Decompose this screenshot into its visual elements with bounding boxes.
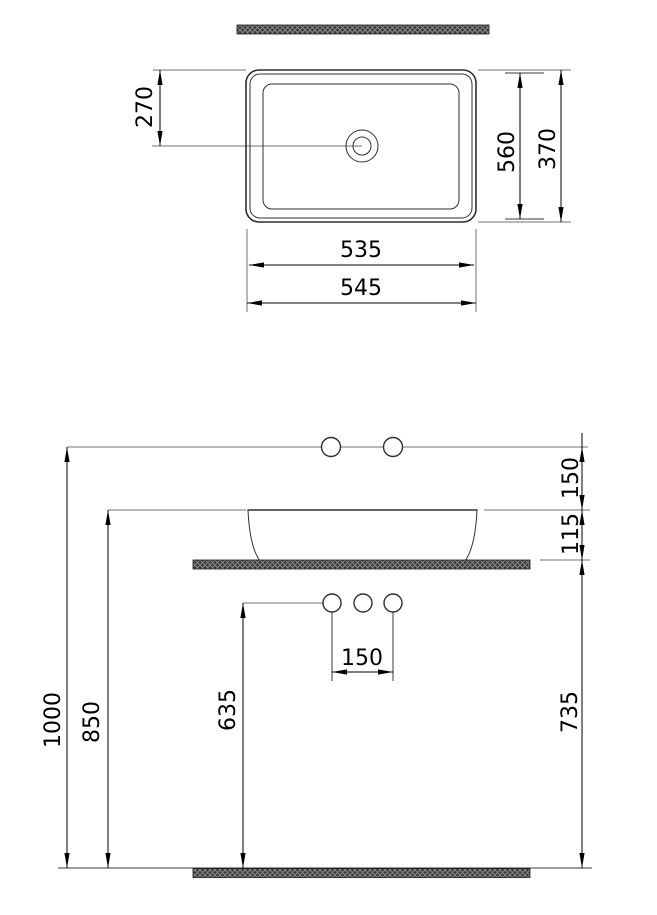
- dim-inner-width-label: 535: [340, 238, 382, 263]
- basin-front-left-side: [248, 510, 260, 561]
- dim-inner-depth-label: 560: [495, 131, 520, 173]
- dim-counter-height: 735: [558, 560, 585, 868]
- dim-supply-height: 1000: [41, 447, 70, 868]
- technical-drawing-page: 270 560 370 535: [0, 0, 657, 915]
- supply-hole-left: [322, 438, 341, 457]
- top-view: 270 560 370 535: [133, 25, 571, 312]
- dim-outer-depth: 370: [536, 70, 564, 222]
- mounting-hole-left: [323, 594, 341, 612]
- floor-section-bar: [193, 869, 530, 878]
- dim-drain-offset-label: 270: [133, 86, 158, 128]
- wall-section-bar: [237, 25, 489, 34]
- front-view: 150 115 735 150 635: [41, 433, 592, 878]
- dim-outer-depth-label: 370: [536, 128, 561, 170]
- dim-supply-above-rim: 150: [559, 433, 585, 510]
- dim-faucet-hole-spacing-label: 150: [341, 646, 383, 671]
- mounting-hole-center: [354, 594, 372, 612]
- dim-supply-height-label: 1000: [41, 692, 66, 748]
- dim-faucet-hole-spacing: 150: [332, 646, 393, 675]
- dim-outer-width-label: 545: [340, 276, 382, 301]
- dim-counter-height-label: 735: [558, 691, 583, 733]
- dim-drain-height: 635: [216, 603, 246, 868]
- dim-rim-above-counter: 115: [559, 510, 585, 560]
- dim-rim-above-counter-label: 115: [559, 513, 584, 555]
- dim-supply-above-rim-label: 150: [559, 457, 584, 499]
- basin-front-right-side: [465, 510, 477, 561]
- supply-hole-right: [384, 438, 403, 457]
- dim-rim-height: 850: [80, 510, 111, 868]
- dim-drain-height-label: 635: [216, 689, 241, 731]
- mounting-hole-right: [384, 594, 402, 612]
- dim-rim-height-label: 850: [80, 701, 105, 743]
- dim-inner-width: 535: [249, 238, 474, 268]
- dim-drain-offset: 270: [133, 70, 163, 146]
- dim-outer-width: 545: [247, 276, 476, 306]
- countertop-section-bar: [193, 560, 530, 569]
- basin-technical-drawing: 270 560 370 535: [0, 0, 657, 915]
